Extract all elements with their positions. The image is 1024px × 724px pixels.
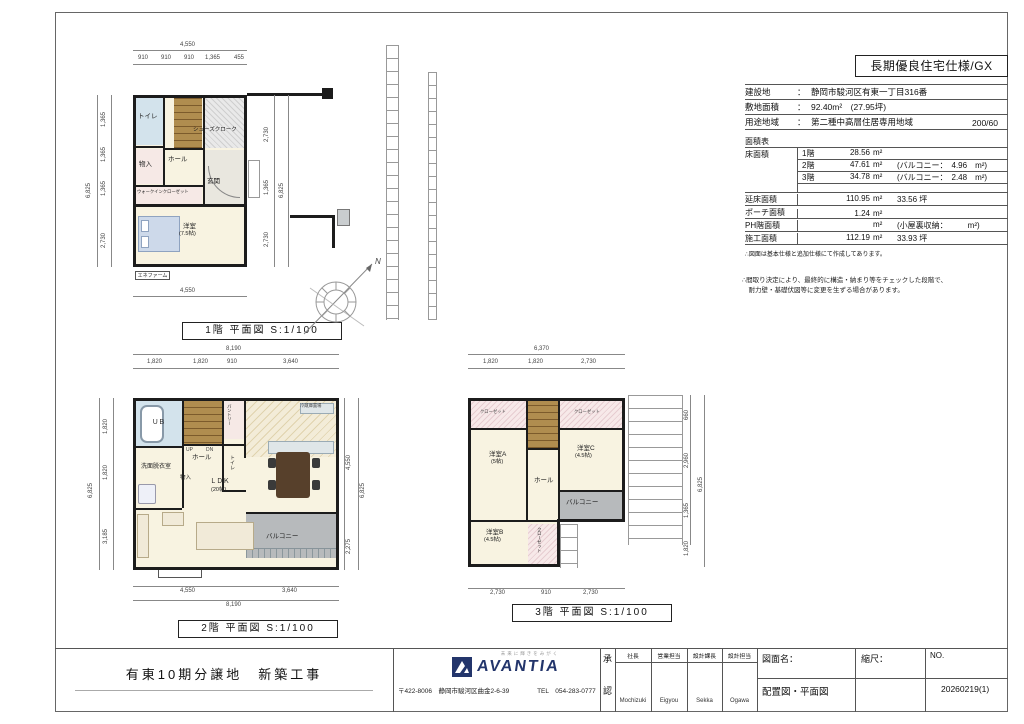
wall — [558, 398, 560, 522]
avantia-logo-icon — [452, 657, 472, 677]
company-address: 〒422-8006 静岡市駿河区曲金2-6-39 TEL 054-283-077… — [398, 685, 596, 695]
north-compass-icon: N — [296, 250, 386, 340]
room-label: トイレ — [229, 455, 234, 470]
wall — [163, 98, 165, 186]
dimension-label: 2,730 — [264, 232, 270, 247]
vline — [288, 95, 289, 267]
sign-col-name: Mochizuki — [615, 698, 651, 704]
dimension-label: 4,550 — [180, 588, 195, 594]
fence-wall — [247, 93, 327, 96]
total-area-row: PH階面積 m² (小屋裏収納： m²) — [745, 219, 1008, 232]
room-size-label: (4.5帖) — [484, 538, 501, 544]
total-area-row: ポーチ面積 1.24 m² — [745, 206, 1008, 219]
dimline-h — [133, 64, 247, 65]
dimension-label: 8,190 — [226, 346, 241, 352]
dimension-label: 4,550 — [180, 288, 195, 294]
dimension-label: 910 — [138, 55, 148, 61]
vline — [274, 95, 275, 267]
total-area-row: 施工面積 112.19 m² 33.93 坪 — [745, 232, 1008, 245]
info-label: 建設地 — [745, 86, 797, 98]
approve-stamp-bottom: 認 — [600, 684, 615, 697]
info-row: 建設地 ： 静岡市駿河区有東一丁目316番 — [745, 85, 1008, 100]
drawing-name-label: 図面名： — [762, 652, 798, 665]
room-label: 物入 — [180, 476, 191, 482]
wall — [560, 490, 622, 492]
bay-window — [158, 570, 202, 578]
wall — [136, 446, 184, 448]
svg-text:N: N — [375, 257, 381, 266]
dimension-label: 910 — [541, 590, 551, 596]
dimline-h — [133, 586, 339, 587]
room-label: クローゼット — [480, 410, 506, 414]
fence-post — [322, 88, 333, 99]
wall — [246, 512, 339, 514]
vline — [344, 398, 345, 570]
dimension-label: 8,190 — [226, 602, 241, 608]
room-label: ＬＤＫ — [210, 479, 230, 486]
vline — [113, 398, 114, 570]
titleblock-divider — [55, 648, 1008, 649]
drawing-name-value: 配置図・平面図 — [762, 684, 829, 698]
sign-col-title: 営業担当 — [651, 651, 687, 660]
dimension-label: 1,820 — [483, 359, 498, 365]
wall — [468, 520, 558, 522]
vline — [358, 398, 359, 570]
dimension-label: 3,640 — [282, 588, 297, 594]
outer-wall — [468, 398, 471, 567]
site-info-table: 建設地 ： 静岡市駿河区有東一丁目316番 敷地面積 ： 92.40m² (27… — [745, 84, 1008, 130]
dimension-label: 455 — [234, 55, 244, 61]
info-extra: 200/60 — [972, 118, 1008, 128]
dimension-label: 910 — [227, 359, 237, 365]
dimension-label: 2,730 — [264, 127, 270, 142]
room-label: 洋室 — [183, 224, 196, 231]
project-underline — [75, 690, 373, 691]
dimline-h — [133, 296, 247, 297]
fence-wall — [290, 215, 335, 218]
dimension-label: 1,820 — [103, 419, 109, 434]
dimline-h — [133, 600, 339, 601]
dimension-label: 4,550 — [180, 42, 195, 48]
dimension-label: 1,365 — [101, 112, 107, 127]
company-name: AVANTIA — [476, 658, 561, 676]
area-table: 面積表 床面積 1階 28.56 m² 2階 47.61 m² (バルコニー： … — [745, 136, 1008, 259]
room-label: ＵＢ — [152, 420, 165, 427]
dimension-label: 6,825 — [698, 477, 704, 492]
closet-b — [528, 524, 558, 565]
wall — [182, 398, 184, 508]
dimline-h — [133, 368, 339, 369]
info-label: 敷地面積 — [745, 101, 797, 113]
room-label: ホール — [534, 478, 554, 485]
wall — [133, 204, 247, 207]
info-value: 第二種中高層住居専用地域 — [811, 116, 913, 128]
room-label: ホール — [168, 157, 188, 164]
room-label: ウォークインクローゼット — [137, 190, 189, 194]
info-row: 敷地面積 ： 92.40m² (27.95坪) — [745, 100, 1008, 115]
room-size-label: (4.5帖) — [575, 454, 592, 460]
outer-wall — [560, 519, 625, 522]
vline — [99, 398, 100, 570]
floor-area-row: 床面積 1階 28.56 m² — [745, 148, 1008, 160]
room-size-label: (7.5帖) — [179, 232, 196, 238]
dimension-label: 660 — [684, 410, 690, 420]
vline — [690, 395, 691, 545]
wall — [136, 185, 203, 187]
vline — [111, 95, 112, 267]
company-logo: AVANTIA — [452, 657, 560, 677]
company-tel: TEL 054-283-0777 — [537, 688, 596, 695]
dimension-label: 4,550 — [346, 455, 352, 470]
dimension-label: 1,820 — [103, 465, 109, 480]
dimension-label: 1,365 — [684, 503, 690, 518]
dimension-label: 2,730 — [490, 590, 505, 596]
dimension-label: 1,365 — [101, 181, 107, 196]
dimension-label: 910 — [161, 55, 171, 61]
remark-note: ∴間取り決定により、最終的に構造・納まり等をチェックした段階で、 耐力壁・基礎伏… — [742, 276, 1014, 297]
room-label: クローゼット — [537, 527, 541, 553]
dimension-label: 6,370 — [534, 346, 549, 352]
dimension-label: 2,730 — [581, 359, 596, 365]
floor-area-row: 2階 47.61 m² (バルコニー： 4.96 m²) — [745, 160, 1008, 172]
room-label: ホール — [192, 455, 212, 462]
porch-step — [248, 160, 260, 198]
dimension-label: 910 — [184, 55, 194, 61]
room-size-label: (20帖) — [211, 488, 226, 494]
vline — [704, 395, 705, 567]
dimension-label: 1,820 — [193, 359, 208, 365]
scale-label: 縮尺： — [861, 652, 888, 665]
dimension-label: 1,820 — [684, 541, 690, 556]
room-label: 冷蔵庫置場 — [300, 404, 321, 408]
closet-a — [471, 401, 526, 428]
outer-wall — [468, 398, 625, 401]
roof-hatch — [628, 395, 683, 545]
wall — [244, 398, 246, 458]
lower-roof — [560, 524, 578, 568]
dimline-h — [468, 368, 625, 369]
info-value: 92.40m² (27.95坪) — [811, 101, 886, 113]
room-label: 洋室B — [486, 530, 503, 537]
site-boundary-strip — [428, 72, 437, 320]
drawing-no-label: NO. — [930, 651, 944, 660]
outer-wall — [557, 519, 560, 567]
room-label: バルコニー — [566, 500, 598, 507]
wall — [560, 428, 622, 430]
stairs-3f — [528, 398, 558, 448]
dimline-h — [468, 354, 625, 355]
room-label: バルコニー — [266, 534, 298, 541]
vline — [97, 95, 98, 267]
dimline-h — [468, 588, 625, 589]
dimension-label: 6,825 — [88, 483, 94, 498]
room-label: トイレ — [138, 114, 158, 121]
room-size-label: (5帖) — [491, 460, 503, 466]
room-label: 物入 — [139, 162, 152, 169]
sign-col-title: 設計課長 — [687, 651, 722, 660]
sign-col-title: 社長 — [615, 651, 651, 660]
room-label: 洗面脱衣室 — [141, 464, 171, 470]
site-boundary-strip — [386, 45, 399, 320]
wall — [526, 398, 528, 522]
area-table-title: 面積表 — [745, 136, 1008, 148]
approve-stamp-top: 承 — [600, 652, 615, 665]
stair-label: UP — [186, 448, 193, 453]
meter-box — [337, 209, 350, 226]
room-label: 玄関 — [207, 179, 220, 186]
wall — [136, 508, 182, 510]
room-label: 洋室A — [489, 452, 506, 459]
dimension-label: 1,365 — [101, 147, 107, 162]
dimension-label: 1,820 — [528, 359, 543, 365]
dimension-label: 6,825 — [279, 183, 285, 198]
room-label: シューズクローク — [193, 128, 237, 134]
sign-col-name: Sekka — [687, 698, 722, 704]
sign-col-name: Eigyou — [651, 698, 687, 704]
dimension-label: 2,960 — [684, 453, 690, 468]
wall — [203, 98, 205, 204]
dimension-label: 3,640 — [283, 359, 298, 365]
dimension-label: 2,730 — [101, 233, 107, 248]
wall — [165, 148, 205, 150]
wall — [528, 448, 558, 450]
caption-floor2: 2階 平面図 S:1/100 — [178, 620, 338, 638]
info-row: 用途地域 ： 第二種中高層住居専用地域 200/60 — [745, 115, 1008, 130]
sign-col-name: Ogawa — [722, 698, 757, 704]
wall — [184, 444, 246, 446]
wall — [136, 146, 165, 148]
drawing-no-value: 20260219(1) — [941, 684, 989, 694]
dimension-label: 1,365 — [205, 55, 220, 61]
outer-wall — [622, 398, 625, 522]
dimension-label: 2,275 — [346, 539, 352, 554]
dimension-label: 1,365 — [264, 180, 270, 195]
project-title: 有東10期分譲地 新築工事 — [55, 664, 393, 683]
dimension-label: 1,820 — [147, 359, 162, 365]
spec-box: 長期優良住宅仕様/GX — [855, 55, 1008, 77]
total-area-row: 延床面積 110.95 m² 33.56 坪 — [745, 193, 1008, 206]
info-value: 静岡市駿河区有東一丁目316番 — [811, 86, 927, 98]
dimension-label: 6,825 — [86, 183, 92, 198]
floor-area-row: 3階 34.78 m² (バルコニー： 2.48 m²) — [745, 172, 1008, 184]
sign-col-title: 設計担当 — [722, 651, 757, 660]
room-label: パントリー — [227, 404, 231, 426]
dimension-label: 2,730 — [583, 590, 598, 596]
stair-label: DN — [206, 448, 213, 453]
room-label: クローゼット — [574, 410, 600, 414]
closet-c — [560, 401, 622, 428]
wall — [471, 428, 526, 430]
room-label: 洋室C — [577, 446, 595, 453]
caption-floor3: 3階 平面図 S:1/100 — [512, 604, 672, 622]
dimension-label: 3,185 — [103, 529, 109, 544]
outer-wall — [468, 564, 560, 567]
fence-wall — [332, 215, 335, 248]
dimension-label: 6,825 — [360, 483, 366, 498]
enefarm-label: エネファーム — [135, 271, 170, 280]
info-label: 用途地域 — [745, 116, 797, 128]
dimline-h — [133, 50, 247, 51]
dimline-h — [133, 354, 339, 355]
area-note: ∴図面は基本仕様と追加仕様にて作成してあります。 — [745, 245, 1008, 259]
